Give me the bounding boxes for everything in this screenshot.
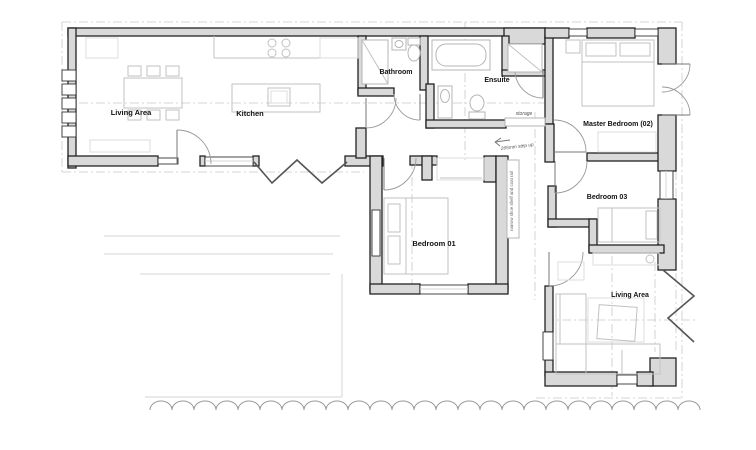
room-label-ensuite: Ensuite [484,77,509,84]
shoe-shelf-note: narrow shoe shelf and coat rail [509,171,514,231]
room-label-bedroom-01: Bedroom 01 [412,239,455,248]
bed-01 [384,158,484,274]
room-label-living-area-second: Living Area [611,292,649,299]
step-up-note: 265mm step up [500,142,535,152]
bathroom-fixtures [362,38,420,84]
floor-plan-canvas: Living Area Kitchen Bathroom Ensuite Mas… [0,0,756,450]
room-label-bedroom-03: Bedroom 03 [587,194,628,201]
bifold-kitchen [254,160,347,183]
bed-03 [593,208,660,265]
room-label-kitchen: Kitchen [236,109,264,118]
sofa [556,262,660,374]
master-bed [566,40,656,152]
bifold-living [663,270,694,342]
hob [268,39,290,57]
room-label-bathroom: Bathroom [379,69,412,76]
patio-lines [104,236,342,397]
storage-label: storage [516,111,533,117]
room-label-master-bedroom: Master Bedroom (02) [583,121,653,128]
floor-plan-drawing: Living Area Kitchen Bathroom Ensuite Mas… [0,0,756,450]
step-up-arrow [495,138,510,146]
room-label-living-area-main: Living Area [111,108,152,117]
hedge-line [150,401,700,410]
french-doors [662,64,690,115]
